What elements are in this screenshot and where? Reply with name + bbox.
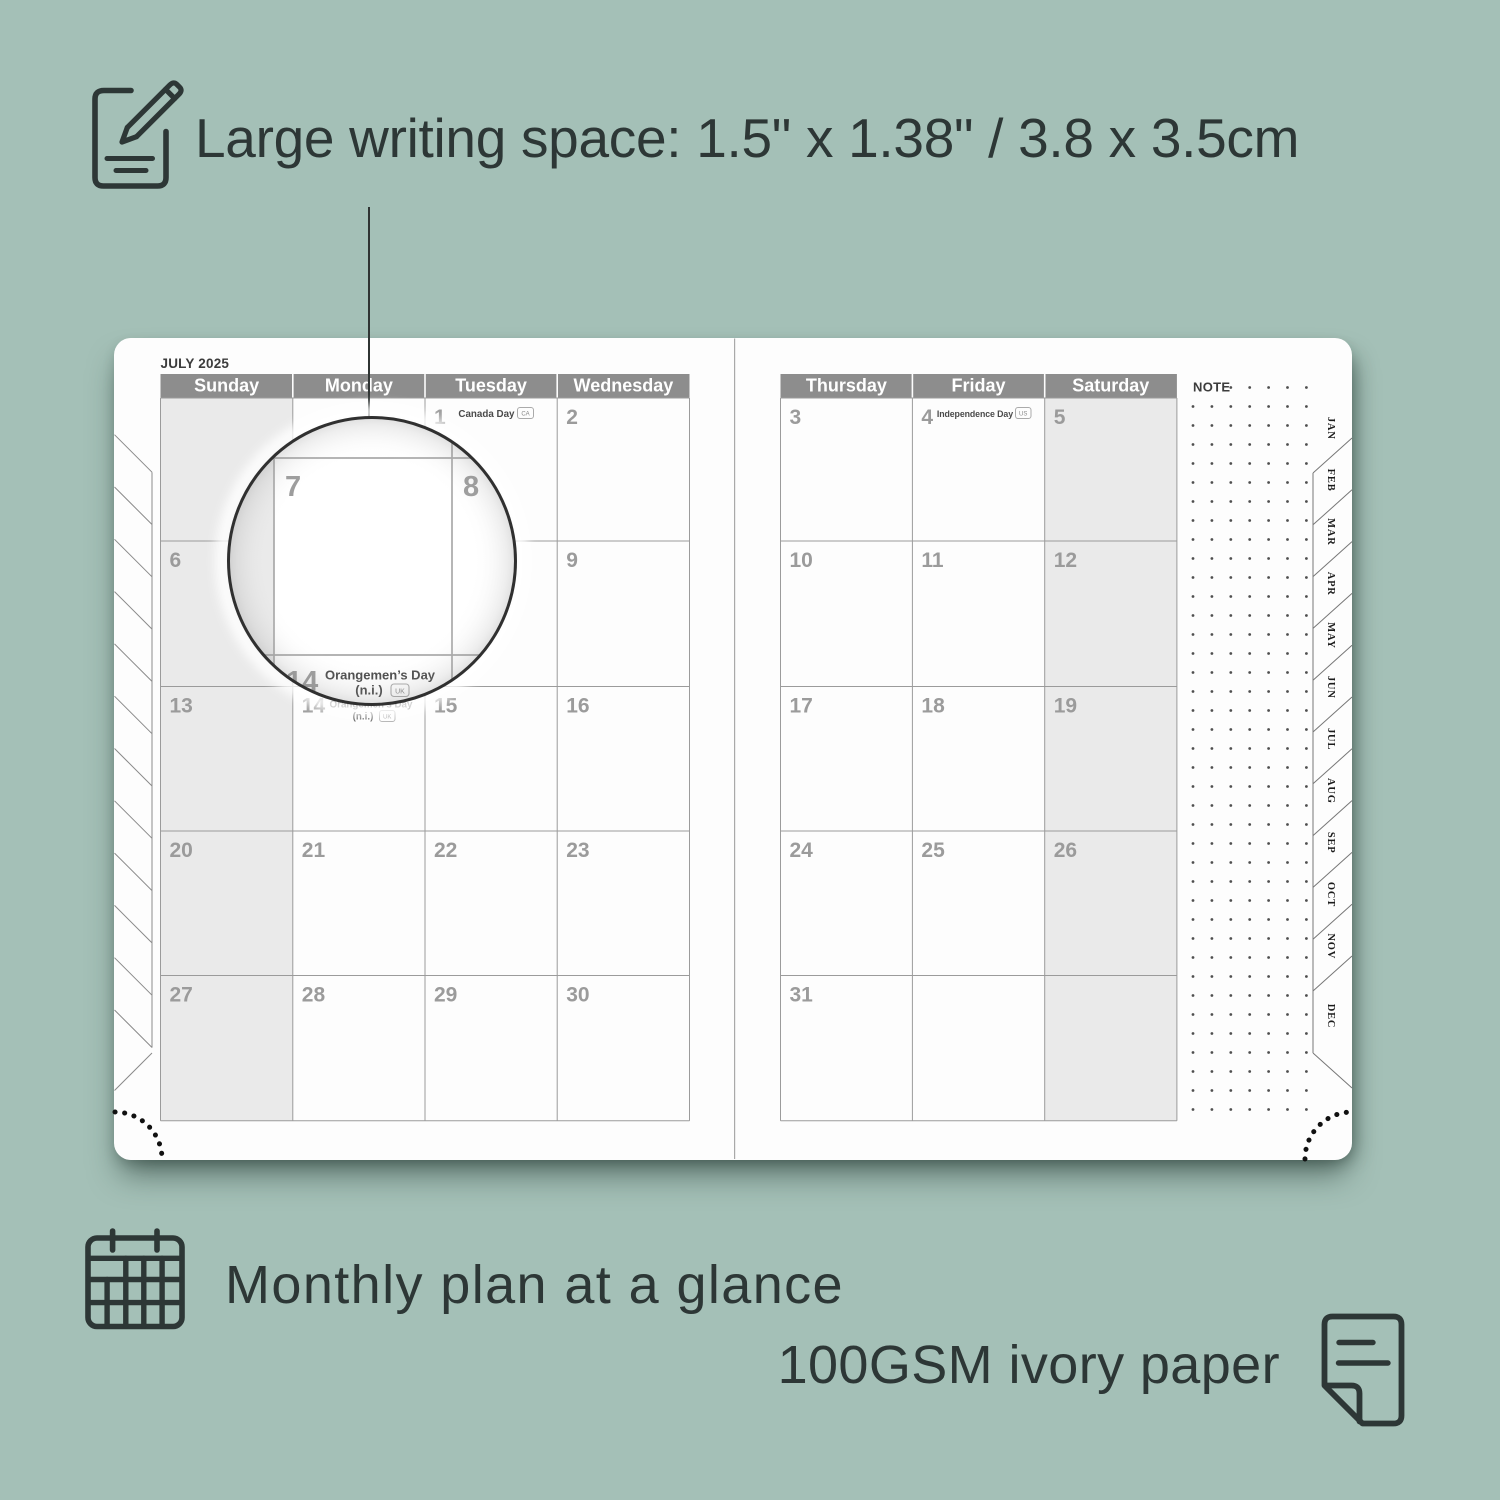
svg-text:20: 20 (170, 839, 193, 862)
svg-text:21: 21 (302, 839, 326, 862)
svg-text:Thursday: Thursday (806, 376, 887, 396)
svg-text:OCT: OCT (1325, 882, 1336, 907)
svg-text:Wednesday: Wednesday (574, 376, 674, 396)
svg-text:SEP: SEP (1325, 832, 1336, 854)
svg-text:30: 30 (566, 984, 589, 1007)
svg-text:JULY 2025: JULY 2025 (161, 356, 230, 371)
svg-text:MAR: MAR (1325, 518, 1336, 545)
svg-text:4: 4 (921, 406, 933, 429)
svg-text:AUG: AUG (1325, 778, 1336, 804)
svg-text:25: 25 (921, 839, 945, 862)
svg-text:JUL: JUL (1325, 728, 1336, 750)
svg-text:DEC: DEC (1325, 1004, 1336, 1029)
svg-text:Independence Day: Independence Day (937, 409, 1013, 419)
svg-text:Saturday: Saturday (1072, 376, 1149, 396)
svg-text:10: 10 (790, 549, 813, 572)
svg-text:MAY: MAY (1325, 622, 1336, 649)
svg-text:11: 11 (921, 549, 944, 572)
svg-text:19: 19 (1054, 695, 1077, 718)
svg-text:NOV: NOV (1325, 933, 1336, 959)
svg-text:APR: APR (1325, 572, 1336, 596)
svg-text:US: US (1019, 412, 1027, 418)
svg-text:NOTE: NOTE (1193, 380, 1230, 395)
svg-text:5: 5 (1054, 406, 1066, 429)
svg-text:18: 18 (921, 695, 945, 718)
svg-text:29: 29 (434, 984, 457, 1007)
svg-text:27: 27 (170, 984, 193, 1007)
svg-text:26: 26 (1054, 839, 1077, 862)
svg-text:23: 23 (566, 839, 589, 862)
svg-text:JUN: JUN (1325, 676, 1336, 699)
svg-text:JAN: JAN (1325, 417, 1336, 440)
svg-text:22: 22 (434, 839, 457, 862)
svg-text:Friday: Friday (951, 376, 1005, 396)
svg-text:12: 12 (1054, 549, 1077, 572)
svg-text:24: 24 (790, 839, 814, 862)
svg-text:31: 31 (790, 984, 814, 1007)
svg-text:FEB: FEB (1325, 469, 1336, 492)
svg-text:3: 3 (790, 406, 802, 429)
svg-text:17: 17 (790, 695, 813, 718)
svg-text:28: 28 (302, 984, 326, 1007)
